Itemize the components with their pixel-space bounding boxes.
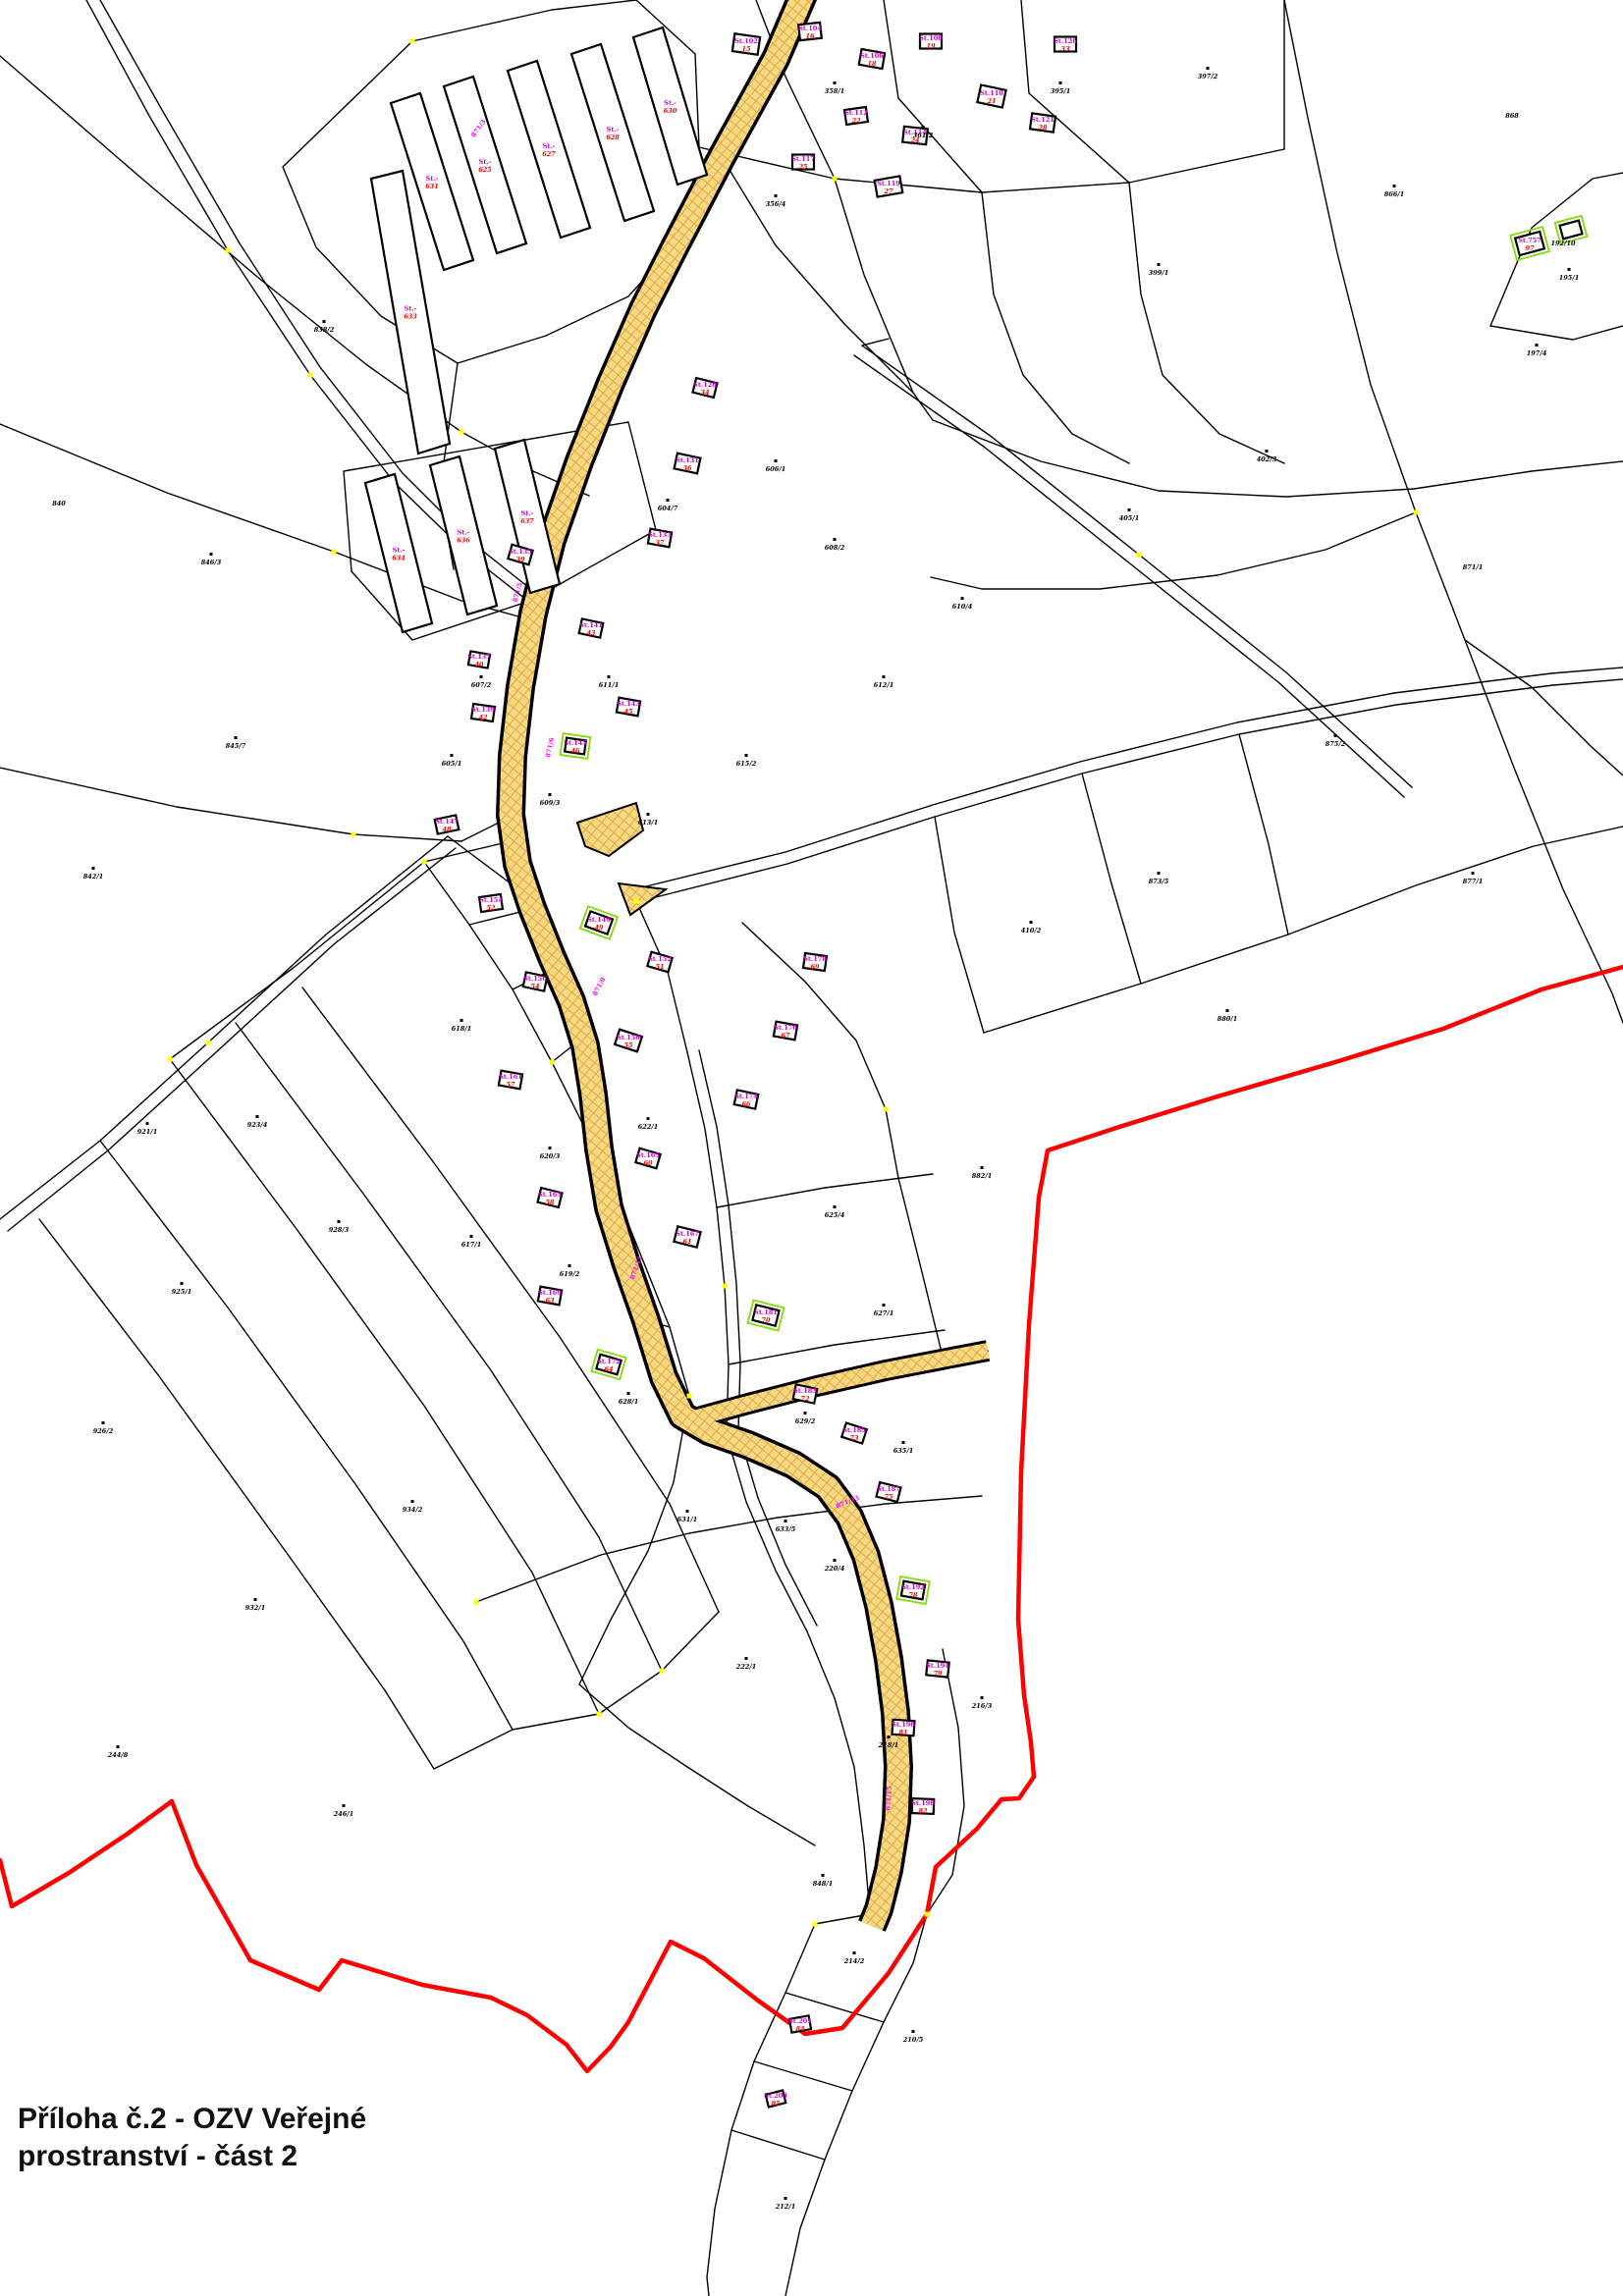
parcel-line — [39, 1219, 434, 1769]
parcel-label: 361/2 — [913, 132, 934, 139]
parcel-label-mark — [343, 1804, 346, 1807]
parcel-line — [884, 0, 982, 192]
building-label-st: St.- — [543, 142, 556, 150]
parcel-label-mark — [146, 1122, 149, 1125]
vertex-dot — [168, 1057, 173, 1062]
parcel-label-mark — [323, 320, 326, 323]
parcel-label-mark — [981, 1696, 984, 1699]
parcel-label-mark — [922, 126, 925, 129]
parcel-label: 410/2 — [1021, 927, 1042, 934]
parcel-line — [1239, 734, 1288, 934]
cadastral-map-canvas: St.-625St.-627St.-628St.-630St.-631St.-6… — [0, 0, 1623, 2296]
parcel-label: 222/1 — [735, 1663, 756, 1671]
parcel-label: 625/4 — [825, 1211, 845, 1219]
parcel-label: 871/1 — [1463, 563, 1483, 571]
building-label-st: St.137 — [467, 653, 491, 661]
parcel-label: 866/1 — [1384, 190, 1404, 198]
building-label-number: 75 — [884, 1493, 893, 1501]
building-label-number: 82 — [918, 1807, 928, 1815]
map-title: Příloha č.2 - OZV Veřejné prostranství -… — [18, 2101, 469, 2175]
building-label-number: 34 — [700, 389, 710, 397]
building-label-number: 15 — [741, 45, 751, 53]
parcel-label-mark — [853, 1951, 856, 1954]
parcel-label: 604/7 — [658, 505, 678, 512]
parcel-line — [170, 1059, 599, 1714]
parcel-line — [1021, 0, 1129, 183]
building-label-st: St.169 — [538, 1289, 562, 1297]
parcel-line — [100, 1141, 513, 1730]
parcel-label-mark — [102, 1421, 105, 1424]
parcel-label-mark — [1128, 508, 1131, 511]
building-label-number: 60 — [643, 1159, 653, 1167]
building-label-st: St.174 — [734, 1093, 758, 1100]
parcel-label-mark — [775, 459, 778, 462]
building-label-st: St.178 — [803, 955, 827, 963]
parcel-label: 356/4 — [766, 200, 786, 208]
parcel-label: 611/1 — [599, 681, 619, 689]
building-label-st: St.117 — [791, 155, 815, 163]
building-label-number: 625 — [478, 166, 492, 174]
parcel-label-mark — [1266, 450, 1269, 453]
parcel-line — [862, 346, 1412, 787]
building-label-number: 42 — [478, 714, 488, 721]
building-label-number: 33 — [1060, 45, 1070, 53]
road-branch-fill — [687, 1351, 988, 1420]
parcel-label: 618/1 — [452, 1025, 471, 1033]
vertex-dot — [550, 1060, 555, 1065]
parcel-label: 620/3 — [540, 1152, 561, 1160]
parcel-label-mark — [460, 1019, 463, 1022]
building-label-st: St.131 — [676, 456, 699, 464]
parcel-label-mark — [256, 1115, 259, 1118]
building-label-st: St.194 — [926, 1662, 949, 1670]
building-label-st: St.187 — [877, 1485, 900, 1493]
parcel-label: 934/2 — [403, 1506, 423, 1514]
parcel-label: 868 — [1505, 112, 1519, 120]
building-label-st: St.158 — [617, 1034, 640, 1041]
parcel-label: 607/2 — [471, 681, 492, 689]
parcel-label: 210/5 — [902, 2036, 924, 2044]
parcel-line — [754, 2061, 852, 2091]
parcel-line — [862, 339, 889, 346]
parcel-label: 928/3 — [329, 1226, 350, 1234]
building-label-number: 39 — [515, 556, 525, 563]
building-label-st: St.- — [426, 175, 439, 183]
parcel-label: 214/2 — [843, 1957, 865, 1965]
building-label-st: St.201 — [788, 2017, 812, 2025]
parcel-label-mark — [745, 754, 748, 757]
building-label-st: St.135 — [509, 548, 532, 556]
parcel-label: 845/7 — [226, 742, 246, 750]
parcel-label: 921/1 — [137, 1128, 157, 1136]
parcel-label: 220/4 — [824, 1565, 845, 1573]
parcel-line — [8, 848, 456, 1231]
parcel-line — [1490, 173, 1623, 326]
building-label-number: 55 — [623, 1041, 633, 1049]
parcel-label: 617/1 — [461, 1241, 481, 1249]
building-label-number: 69 — [810, 963, 820, 971]
parcel-line — [0, 424, 518, 616]
building-label-st: St.181 — [754, 1308, 778, 1316]
building-label-st: St.112 — [844, 109, 868, 117]
parcel-label-mark — [981, 1166, 984, 1169]
building-label-st: St.102 — [734, 37, 758, 45]
road-parcel-label: 871/8 — [591, 976, 608, 997]
parcel-label-mark — [686, 1510, 689, 1513]
vertex-dot — [813, 1922, 818, 1927]
parcel-label-mark — [902, 1441, 905, 1444]
parcel-label-mark — [834, 81, 837, 84]
parcel-label-mark — [338, 1220, 341, 1223]
parcel-line — [722, 157, 933, 420]
building-label-st: St.183 — [793, 1387, 817, 1395]
parcel-line — [0, 768, 511, 841]
building-label-number: 78 — [908, 1591, 918, 1599]
parcel-label: 395/1 — [1051, 87, 1070, 95]
parcel-label-mark — [1158, 872, 1161, 875]
building-label-number: 49 — [594, 924, 604, 932]
parcel-label: 613/1 — [638, 819, 658, 827]
building-label-st: St.121 — [1031, 116, 1055, 124]
parcel-line — [699, 1050, 817, 1626]
parcel-line — [636, 901, 687, 1052]
parcel-label-mark — [1536, 344, 1539, 347]
vertex-dot — [206, 1041, 211, 1045]
parcel-label: 873/5 — [1149, 878, 1169, 885]
parcel-label-mark — [647, 813, 650, 816]
parcel-line — [898, 1178, 988, 1364]
parcel-label-mark — [834, 1559, 837, 1562]
vertex-dot — [687, 1394, 692, 1399]
building-label-number: 67 — [781, 1032, 790, 1040]
parcel-label-mark — [549, 1147, 552, 1149]
parcel-label: 875/2 — [1325, 740, 1346, 748]
parcel-line — [935, 817, 984, 1033]
parcel-line — [807, 1631, 870, 1914]
parcel-label-mark — [745, 1657, 748, 1660]
building-label-number: 48 — [442, 826, 452, 833]
parcel-line — [707, 1924, 815, 2296]
building-label-number: 627 — [542, 150, 556, 158]
parcel-label: 358/1 — [825, 87, 844, 95]
building-label-st: St.152 — [648, 955, 672, 963]
building-label-st: St.139 — [471, 706, 495, 714]
road-junction-patch — [577, 803, 643, 856]
building-label-st: St.- — [521, 509, 534, 517]
parcel-line — [982, 192, 1129, 463]
building-label-st: St.- — [405, 305, 417, 313]
municipal-boundary-red — [0, 967, 1623, 2071]
parcel-line — [579, 1396, 689, 1684]
parcel-label: 880/1 — [1217, 1015, 1237, 1023]
parcel-label: 195/1 — [1559, 274, 1579, 282]
building-label-st: St.108 — [919, 34, 943, 42]
parcel-line — [1465, 640, 1623, 775]
building-label-st: St.143 — [617, 700, 640, 708]
parcel-label-mark — [1059, 81, 1062, 84]
parcel-line — [699, 147, 1284, 192]
building-label-st: St.161 — [499, 1073, 522, 1081]
parcel-label: 397/2 — [1198, 73, 1218, 80]
parcel-label-mark — [1334, 734, 1337, 737]
building-label-st: St.- — [607, 126, 620, 133]
parcel-label: 212/1 — [775, 2203, 795, 2211]
parcel-label-mark — [470, 1235, 473, 1238]
parcel-line — [434, 1612, 719, 1769]
parcel-line — [579, 1684, 815, 1845]
parcel-label-mark — [117, 1745, 120, 1748]
parcel-line — [0, 836, 448, 1219]
parcel-label: 610/4 — [952, 603, 973, 611]
building-label-number: 633 — [404, 313, 417, 321]
building-label-number: 85 — [771, 2100, 781, 2108]
parcel-label-mark — [883, 1304, 886, 1307]
parcel-label: 846/3 — [201, 559, 222, 566]
road-main-casing — [511, 0, 898, 1926]
building-label-number: 70 — [761, 1316, 771, 1324]
building-label-number: 46 — [570, 747, 580, 755]
building-label-number: 637 — [520, 517, 534, 525]
parcel-label-mark — [1207, 67, 1210, 70]
parcel-label-mark — [1568, 268, 1571, 271]
building-label-number: 58 — [545, 1199, 555, 1206]
building-label-st: St.133 — [648, 531, 672, 539]
building-label-st: St.104 — [798, 25, 822, 32]
building-label-st: St.203 — [764, 2092, 787, 2100]
parcel-label-mark — [92, 867, 95, 870]
building-label-number: 40 — [474, 661, 484, 668]
building-label-number: 61 — [682, 1238, 691, 1246]
cadastral-map: St.-625St.-627St.-628St.-630St.-631St.-6… — [0, 0, 1623, 2296]
parcel-label-mark — [834, 538, 837, 541]
building-label-st: St.110 — [980, 89, 1003, 97]
parcel-line — [638, 667, 1623, 888]
map-title-line2: prostranství - část 2 — [18, 2138, 469, 2175]
building-label-number: 97 — [1525, 244, 1535, 252]
parcel-label-mark — [627, 1392, 630, 1395]
parcel-label: 246/1 — [333, 1810, 353, 1818]
building-label-st: St.- — [393, 547, 406, 555]
parcel-label-mark — [883, 675, 886, 678]
building-label-st: St.- — [479, 158, 492, 166]
parcel-label: 244/8 — [107, 1751, 129, 1759]
parcel-line — [931, 512, 1416, 589]
parcel-label: 926/2 — [93, 1427, 114, 1435]
building-label-st: St.145 — [564, 739, 587, 747]
building-label-number: 25 — [797, 163, 808, 171]
building-label-st: St.192 — [901, 1583, 925, 1591]
vertex-dot — [723, 1284, 728, 1289]
parcel-label: 932/1 — [245, 1604, 265, 1612]
parcel-label: 877/1 — [1463, 878, 1483, 885]
road-junction-patch — [619, 883, 666, 915]
parcel-label: 629/2 — [795, 1417, 816, 1425]
building-label-number: 22 — [850, 117, 861, 125]
building-label-number: 54 — [530, 983, 540, 990]
building-label-number: 37 — [655, 539, 665, 547]
parcel-label: 612/1 — [874, 681, 893, 689]
parcel-label: 609/3 — [540, 799, 561, 807]
parcel-label: 631/1 — [677, 1516, 697, 1523]
parcel-label: 606/1 — [766, 465, 785, 473]
building-label-st: St.757 — [1518, 237, 1542, 244]
building-label-st: St.126 — [1054, 37, 1077, 45]
parcel-label: 622/1 — [638, 1123, 658, 1131]
vertex-dot — [422, 860, 427, 865]
parcel-label-mark — [912, 2030, 915, 2033]
parcel-line — [835, 179, 913, 393]
building-label-st: St.106 — [860, 52, 884, 60]
parcel-label: 840 — [52, 500, 66, 507]
parcel-line — [785, 1914, 927, 2296]
parcel-label-mark — [888, 1735, 891, 1738]
vertex-dot — [1137, 553, 1142, 558]
building-label-number: 36 — [682, 464, 692, 472]
parcel-label-mark — [549, 793, 552, 796]
map-title-line1: Příloha č.2 - OZV Veřejné — [18, 2101, 469, 2138]
building-label-st: St.185 — [842, 1426, 866, 1434]
parcel-label-mark — [822, 1874, 825, 1877]
parcel-line — [1490, 326, 1623, 340]
building-label-number: 57 — [506, 1081, 515, 1089]
building-label-number: 27 — [883, 187, 893, 195]
parcel-line — [1284, 0, 1623, 1023]
parcel-label-mark — [1030, 921, 1033, 924]
parcel-line — [731, 2130, 825, 2160]
parcel-label-mark — [647, 1117, 650, 1120]
parcel-label-mark — [775, 194, 778, 197]
parcel-label: 608/2 — [825, 544, 845, 552]
parcel-label-mark — [210, 553, 213, 556]
parcel-label-mark — [235, 736, 238, 739]
building-label-st: St.165 — [636, 1151, 660, 1159]
building-label-number: 628 — [606, 133, 620, 141]
parcel-label: 615/2 — [736, 760, 757, 768]
parcel-label-mark — [834, 1205, 837, 1208]
building-label-st: St.156 — [523, 975, 547, 983]
parcel-line — [0, 56, 589, 496]
vertex-dot — [597, 1712, 602, 1717]
vertex-dot — [226, 248, 231, 253]
parcel-label-mark — [1393, 185, 1396, 187]
building-label-number: 51 — [655, 963, 664, 971]
parcel-line — [1082, 774, 1141, 984]
parcel-label: 848/1 — [813, 1880, 833, 1888]
building-label-number: 631 — [425, 183, 439, 190]
parcel-line — [717, 1174, 933, 1207]
building-label-st: St.198 — [911, 1799, 935, 1807]
parcel-label-mark — [608, 675, 611, 678]
parcel-label-mark — [451, 754, 454, 757]
building-label-st: St.141 — [579, 621, 603, 629]
building-label-st: St.128 — [693, 381, 717, 389]
building-label-st: St.147 — [435, 818, 459, 826]
building-label-number: 28 — [1037, 124, 1048, 132]
vertex-dot — [833, 177, 838, 182]
building-label-number: 45 — [623, 708, 633, 716]
parcel-label: 925/1 — [172, 1288, 191, 1296]
parcel-label-mark — [181, 1282, 184, 1285]
parcel-line — [933, 420, 1623, 497]
building-label-st: St.119 — [877, 180, 900, 187]
building-label-number: 16 — [805, 32, 815, 40]
parcel-label-mark — [804, 1412, 807, 1415]
vertex-dot — [660, 1669, 665, 1674]
parcel-label: 882/1 — [972, 1172, 992, 1180]
parcel-label-mark — [411, 1500, 414, 1503]
parcel-label: 218/1 — [878, 1741, 898, 1749]
parcel-label: 402/3 — [1257, 455, 1277, 463]
building-label-st: St.196 — [892, 1721, 915, 1729]
parcel-label-mark — [1472, 872, 1475, 875]
vertex-dot — [308, 373, 313, 378]
parcel-label: 399/1 — [1149, 269, 1168, 277]
parcel-label-mark — [254, 1598, 257, 1601]
parcel-label-mark — [480, 675, 483, 678]
building-label-number: 84 — [795, 2025, 805, 2033]
vertex-dot — [460, 430, 464, 435]
parcel-line — [687, 1052, 807, 1631]
building-label-number: 18 — [867, 60, 877, 68]
parcel-label-mark — [1158, 263, 1161, 266]
parcel-label-mark — [784, 1520, 787, 1522]
vertex-dot — [925, 1912, 930, 1917]
parcel-label: 628/1 — [619, 1398, 638, 1406]
parcel-label-mark — [784, 2197, 787, 2200]
parcel-label: 838/2 — [314, 326, 335, 334]
road-parcel-label: 871/6 — [544, 736, 556, 758]
building-label-number: 630 — [664, 107, 677, 115]
building-label-st: St.163 — [538, 1191, 562, 1199]
building-label-number: 66 — [741, 1100, 751, 1108]
building — [1560, 221, 1583, 240]
parcel-label: 635/1 — [893, 1447, 913, 1455]
building-label-number: 81 — [898, 1729, 907, 1736]
vertex-dot — [410, 39, 415, 44]
building-label-number: 79 — [933, 1670, 943, 1678]
parcel-label: 923/4 — [247, 1121, 268, 1129]
parcel-line — [1129, 183, 1284, 463]
vertex-dot — [332, 550, 337, 555]
building-label-number: 634 — [392, 555, 406, 562]
building-label-number: 21 — [986, 97, 996, 105]
building-label-number: 52 — [486, 904, 496, 912]
parcel-label: 633/5 — [776, 1525, 796, 1533]
building-label-st: St.176 — [774, 1024, 797, 1032]
building-label-number: 72 — [800, 1395, 810, 1403]
vertex-dot — [634, 899, 639, 904]
building-label-number: 64 — [604, 1365, 614, 1373]
parcel-label-mark — [667, 499, 670, 502]
building-label-number: 73 — [849, 1434, 859, 1442]
parcel-label: 197/4 — [1527, 349, 1547, 357]
parcel-label-mark — [1226, 1009, 1229, 1012]
vertex-dot — [474, 1600, 479, 1605]
vertex-dot — [352, 832, 356, 837]
vertex-dot — [1414, 510, 1419, 515]
parcel-line — [640, 679, 1623, 901]
building-label-st: St.- — [664, 99, 676, 107]
building-label-st: St.172 — [597, 1358, 621, 1365]
parcel-label-mark — [961, 597, 964, 600]
building-label-number: 43 — [586, 629, 596, 637]
parcel-line — [984, 827, 1623, 1033]
parcel-label: 619/2 — [560, 1270, 580, 1278]
parcel-label: 605/1 — [442, 760, 461, 768]
building-label-number: 19 — [926, 42, 936, 50]
building-label-st: St.167 — [676, 1230, 699, 1238]
parcel-label-mark — [568, 1264, 571, 1267]
